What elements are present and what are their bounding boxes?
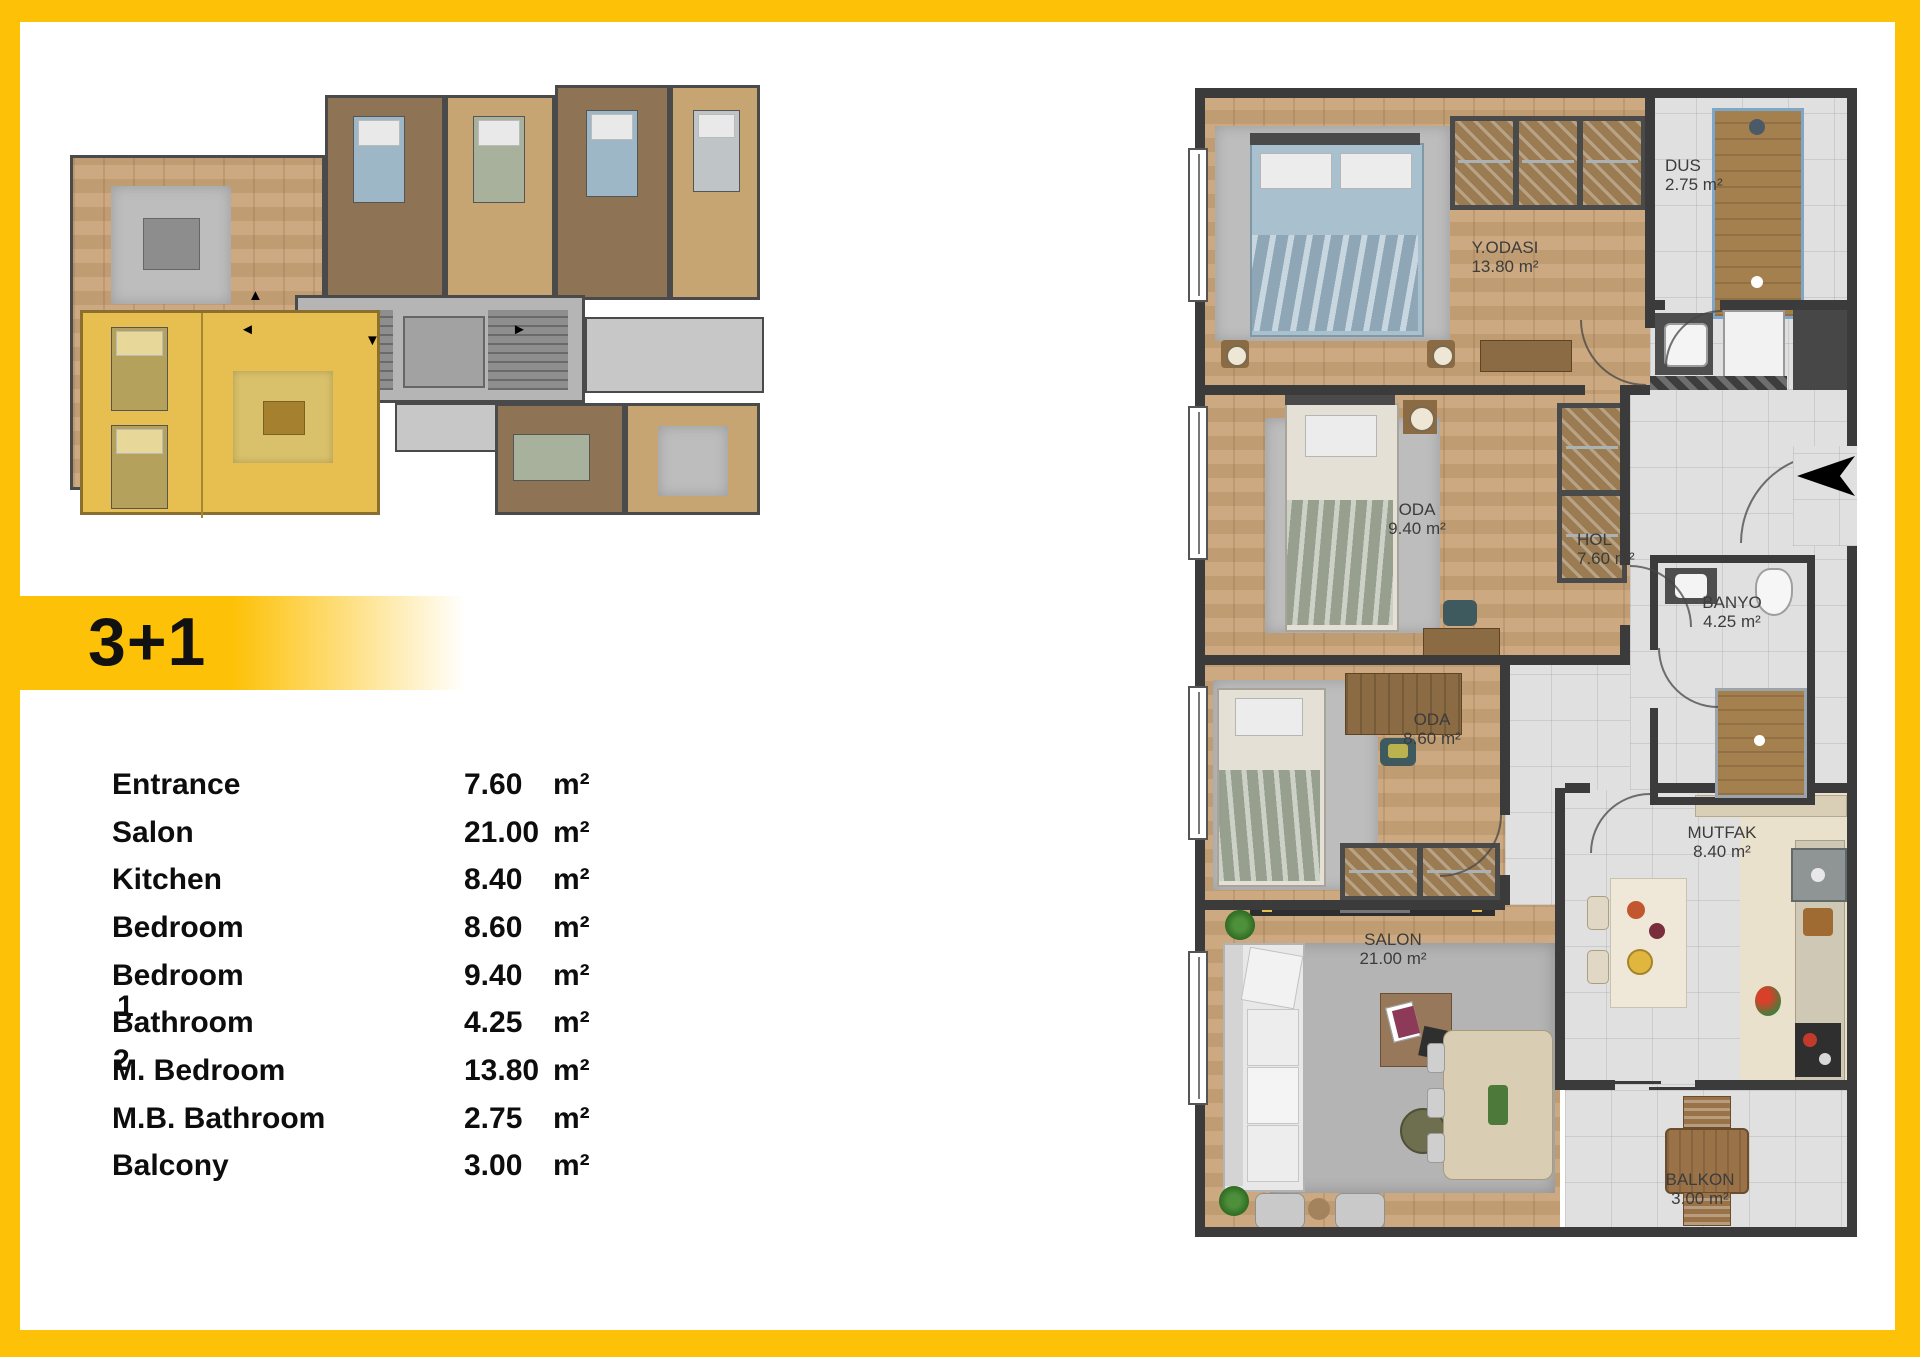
wall [1195,655,1630,665]
fruit-bowl [1627,901,1645,919]
mini-elevator [403,316,485,388]
wall [1645,88,1655,328]
room-label-name: BALKON [1630,1170,1770,1189]
dining-chair [1427,1088,1445,1118]
room-area-unit: m² [553,959,590,993]
chair [1587,896,1609,930]
overview-highlighted-unit [80,310,380,515]
table-row: M.B. Bathroom 2.75 m² [112,1095,592,1143]
room-label-bedroom-8: ODA 8.60 m² [1362,710,1502,748]
room-area-value: 21.00 [464,816,539,850]
room-label-master-bedroom: Y.ODASI 13.80 m² [1435,238,1575,276]
wardrobe-cell [1345,848,1417,896]
wardrobe [1450,116,1646,210]
shower-head [1749,119,1765,135]
sliding-door [1649,1087,1695,1090]
side-table [1308,1198,1330,1220]
overview-unit [325,95,445,300]
wardrobe-cell [1519,121,1577,205]
room-label-area: 2.75 m² [1665,175,1765,194]
wall [1555,900,1565,1085]
room-area-value: 8.60 [464,911,522,945]
room-area-unit: m² [553,816,590,850]
blanket [1252,235,1418,331]
pillow [1260,153,1332,189]
room-label-area: 4.25 m² [1662,612,1802,631]
frame-bottom [0,1330,1920,1357]
wardrobe-cell [1562,408,1622,490]
room-label-area: 7.60 m² [1577,549,1677,568]
master-bed [1250,143,1424,337]
room-area-unit: m² [553,768,590,802]
armchair [1255,1193,1305,1229]
mini-table [263,401,305,435]
balcony-chair [1683,1096,1731,1128]
drain [1754,735,1765,746]
duct-block [1793,305,1849,390]
mini-rug [658,426,728,496]
chair [1587,950,1609,984]
dining-table [1443,1030,1553,1180]
pillow [1340,153,1412,189]
room-label-name: ODA [1347,500,1487,519]
room-area-value: 3.00 [464,1149,522,1183]
shower-cabin [1712,108,1804,319]
chair [1443,600,1477,626]
mini-bed [111,327,168,411]
table-row: M. Bedroom 13.80 m² [112,1047,592,1095]
room-label-name: ODA [1362,710,1502,729]
apartment-floor-plan: Y.ODASI 13.80 m² DUS 2.75 m² ODA 9.40 m²… [1195,88,1857,1237]
mini-wall [201,313,203,518]
overview-corridor [585,317,764,393]
wall [1650,300,1665,310]
table-row: Entrance 7.60 m² [112,761,592,809]
sofa-cushion [1247,1067,1299,1124]
room-area-unit: m² [553,1054,590,1088]
wall [1195,900,1505,910]
window [1188,686,1208,840]
table-row: Bedroom 9.40 m² [112,952,592,1000]
mini-bed [353,116,405,203]
room-area-value: 8.40 [464,863,522,897]
sliding-door [1615,1081,1661,1084]
room-name: Salon [112,816,194,850]
mini-bed [513,434,590,481]
room-label-area: 8.40 m² [1652,842,1792,861]
wall [1555,788,1565,900]
room-area-unit: m² [553,911,590,945]
unit-type-band: 3+1 [0,596,466,690]
room-area-table: Entrance 7.60 m² Salon 21.00 m² Kitchen … [112,761,592,1190]
pillow [1235,698,1303,736]
pot [1819,1053,1831,1065]
room-name: M.B. Bathroom [112,1102,325,1136]
mini-bed [111,425,168,509]
stray-digit: 1 [117,990,134,1024]
room-label-bedroom-9: ODA 9.40 m² [1347,500,1487,538]
room-label-name: BANYO [1662,593,1802,612]
outer-wall [1195,1227,1857,1237]
unit-type-label: 3+1 [88,596,206,690]
wall [1695,1080,1849,1090]
single-bed [1217,688,1326,887]
blanket [1219,770,1320,881]
stove [1795,1023,1841,1077]
room-name: M. Bedroom [112,1054,285,1088]
kitchen-island [1610,878,1687,1008]
room-area-value: 9.40 [464,959,522,993]
room-name: Entrance [112,768,240,802]
frame-right [1895,0,1920,1357]
wall [1650,708,1658,805]
washing-machine [1723,310,1785,378]
up-arrow-icon: ▲ [248,288,263,303]
room-label-balcony: BALKON 3.00 m² [1630,1170,1770,1208]
room-area-unit: m² [553,863,590,897]
window [1188,951,1208,1105]
table-row: Salon 21.00 m² [112,809,592,857]
left-arrow-icon: ◄ [240,322,255,337]
room-area-value: 7.60 [464,768,522,802]
overview-unit [625,403,760,515]
overview-floor-plan: ▲ ◄ ► ▼ [65,85,760,515]
dresser [1480,340,1572,372]
room-label-name: MUTFAK [1652,823,1792,842]
table-row: Balcony 3.00 m² [112,1143,592,1191]
brochure-page: ▲ ◄ ► ▼ 3+1 Entrance 7.60 m² Salon 21.00… [0,0,1920,1357]
room-label-name: HOL [1577,530,1677,549]
plate [1627,949,1653,975]
wall [1720,300,1849,310]
pillow [1305,415,1377,457]
dining-chair [1427,1043,1445,1073]
stray-digit: 2 [113,1044,130,1078]
mini-stairs [488,310,568,390]
mini-bed [473,116,525,203]
wall [1195,385,1585,395]
mini-bed [693,110,740,192]
table-row: Kitchen 8.40 m² [112,856,592,904]
room-name: Bedroom [112,911,244,945]
bathroom-shower [1715,688,1807,798]
right-arrow-icon: ► [512,322,527,337]
outer-wall [1847,88,1857,450]
room-name: Bedroom [112,959,244,993]
room-label-area: 9.40 m² [1347,519,1487,538]
overview-unit [495,403,625,515]
room-label-area: 3.00 m² [1630,1189,1770,1208]
wall [1807,555,1815,805]
room-label-area: 8.60 m² [1362,729,1502,748]
mini-sofa [143,218,200,270]
wardrobe-cell [1455,121,1513,205]
wall [1565,783,1590,793]
room-name: Balcony [112,1149,229,1183]
desk [1423,628,1500,658]
wardrobe-cell [1583,121,1641,205]
room-name: Kitchen [112,863,222,897]
faucet [1811,868,1825,882]
sofa-cushion [1247,1009,1299,1066]
room-label-bathroom: BANYO 4.25 m² [1662,593,1802,631]
fruit-bowl [1649,923,1665,939]
outer-wall [1847,540,1857,1237]
flower-pot [1755,986,1781,1016]
lamp [1226,345,1248,367]
room-label-hall: HOL 7.60 m² [1577,530,1677,568]
cutting-board [1803,908,1833,936]
outer-wall [1195,88,1857,98]
room-label-name: SALON [1323,930,1463,949]
plant [1219,1186,1249,1216]
centerpiece [1488,1085,1508,1125]
sofa-pillow [1241,947,1304,1010]
lamp [1409,406,1435,432]
sofa-back [1225,945,1243,1186]
room-area-value: 2.75 [464,1102,522,1136]
shaft [1650,376,1787,390]
window [1188,148,1208,302]
down-arrow-icon: ▼ [365,333,380,348]
pot [1803,1033,1817,1047]
wall [1555,1080,1615,1090]
room-label-shower: DUS 2.75 m² [1665,156,1765,194]
plant [1225,910,1255,940]
overview-unit [555,85,670,300]
room-area-value: 4.25 [464,1006,522,1040]
overview-corridor [395,403,499,452]
armchair [1335,1193,1385,1229]
room-label-name: Y.ODASI [1435,238,1575,257]
room-label-salon: SALON 21.00 m² [1323,930,1463,968]
mini-bed [586,110,638,197]
wall [1650,797,1815,805]
room-area-value: 13.80 [464,1054,539,1088]
overview-unit [670,85,760,300]
dining-chair [1427,1133,1445,1163]
overview-unit [445,95,555,300]
room-label-kitchen: MUTFAK 8.40 m² [1652,823,1792,861]
room-area-unit: m² [553,1006,590,1040]
kitchen-sink [1791,848,1847,902]
headboard [1250,133,1420,145]
window [1188,406,1208,560]
frame-top [0,0,1920,22]
drain [1751,276,1763,288]
table-row: Bathroom 4.25 m² [112,999,592,1047]
room-label-area: 21.00 m² [1323,949,1463,968]
corner-sofa [1223,943,1305,1192]
room-area-unit: m² [553,1102,590,1136]
room-label-area: 13.80 m² [1435,257,1575,276]
table-row: Bedroom 8.60 m² [112,904,592,952]
room-area-unit: m² [553,1149,590,1183]
lamp [1432,345,1454,367]
room-label-name: DUS [1665,156,1765,175]
sofa-cushion [1247,1125,1299,1182]
